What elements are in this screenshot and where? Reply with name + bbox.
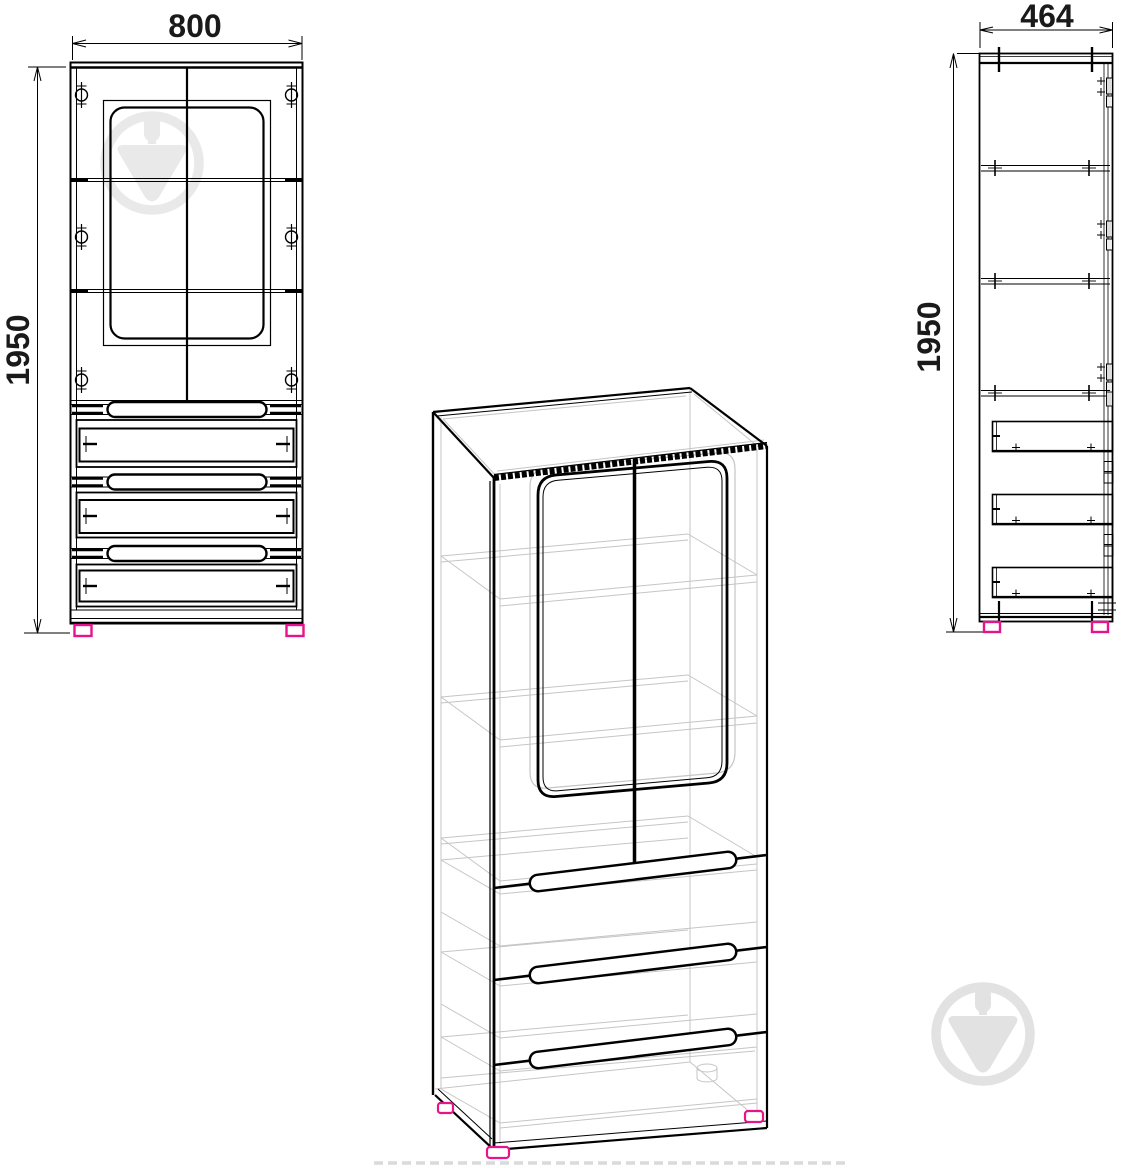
side-hinge-marks	[1097, 77, 1113, 393]
foot	[487, 1147, 509, 1158]
iso-outline	[433, 388, 767, 1150]
side-dimension-lines	[946, 22, 1113, 632]
foot	[287, 625, 304, 636]
side-drawer-boxes	[993, 422, 1117, 611]
side-shelves	[981, 160, 1113, 406]
drawer-1	[77, 420, 297, 467]
drawer-3	[77, 565, 297, 607]
watermark-trowel-icon	[105, 116, 199, 210]
foot	[75, 625, 92, 636]
side-height-dimension-label: 1950	[913, 301, 945, 372]
drawer-fronts	[77, 420, 297, 607]
side-depth-dimension-label: 464	[1020, 0, 1073, 32]
front-height-dimension-label: 1950	[2, 314, 34, 385]
front-width-dimension-label: 800	[168, 10, 221, 42]
isometric-view	[433, 388, 767, 1158]
front-view	[24, 36, 304, 636]
watermark-trowel-icon	[936, 987, 1030, 1081]
foot	[984, 622, 1000, 632]
drawer-handle	[108, 546, 267, 561]
foot	[1092, 622, 1108, 632]
iso-handles	[494, 855, 767, 1065]
technical-drawing-page: 800 1950 464 1950	[0, 0, 1128, 1168]
drawing-canvas	[0, 0, 1128, 1168]
drawer-handle	[108, 402, 267, 417]
foot	[745, 1111, 763, 1122]
iso-door-frame	[538, 461, 727, 796]
side-view	[946, 22, 1116, 632]
drawer-handle	[108, 475, 267, 490]
drawer-2	[77, 493, 297, 538]
foot	[438, 1103, 453, 1113]
